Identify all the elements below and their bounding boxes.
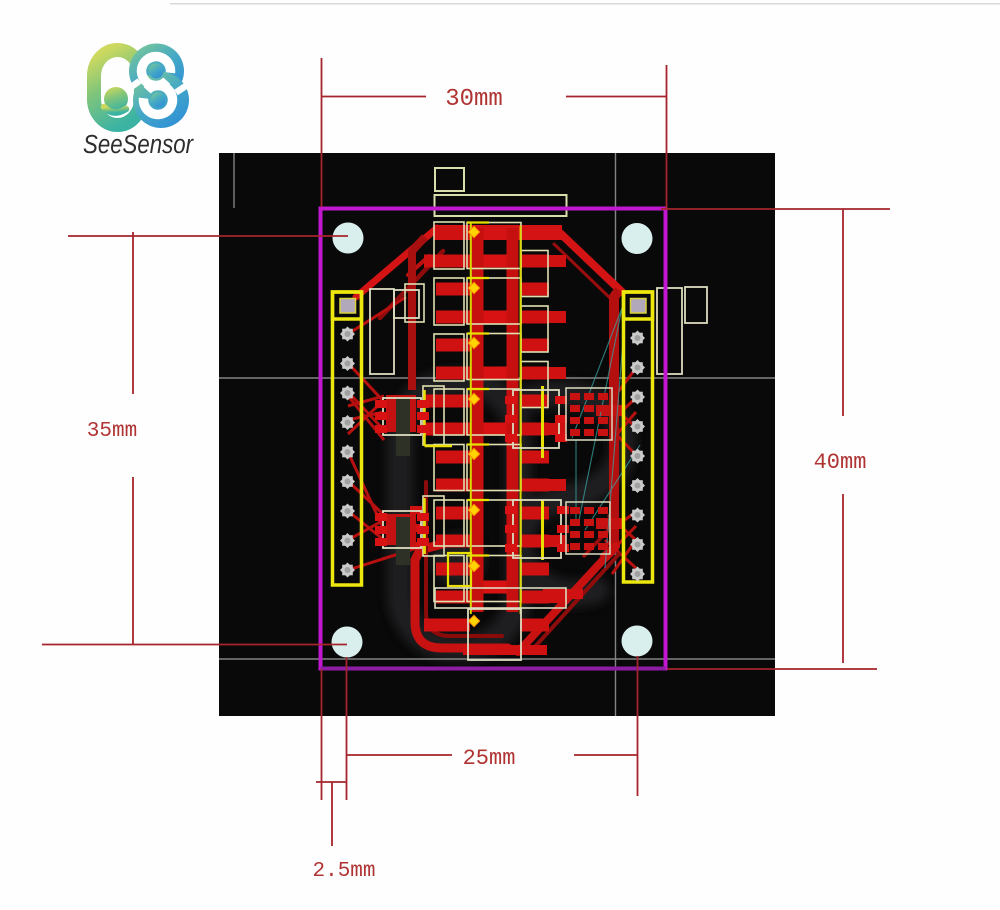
svg-text:35mm: 35mm: [87, 420, 137, 443]
svg-text:SeeSensor: SeeSensor: [83, 131, 194, 159]
svg-text:30mm: 30mm: [445, 86, 503, 113]
svg-text:40mm: 40mm: [814, 450, 867, 475]
svg-text:2.5mm: 2.5mm: [312, 860, 375, 883]
svg-text:25mm: 25mm: [463, 746, 516, 771]
